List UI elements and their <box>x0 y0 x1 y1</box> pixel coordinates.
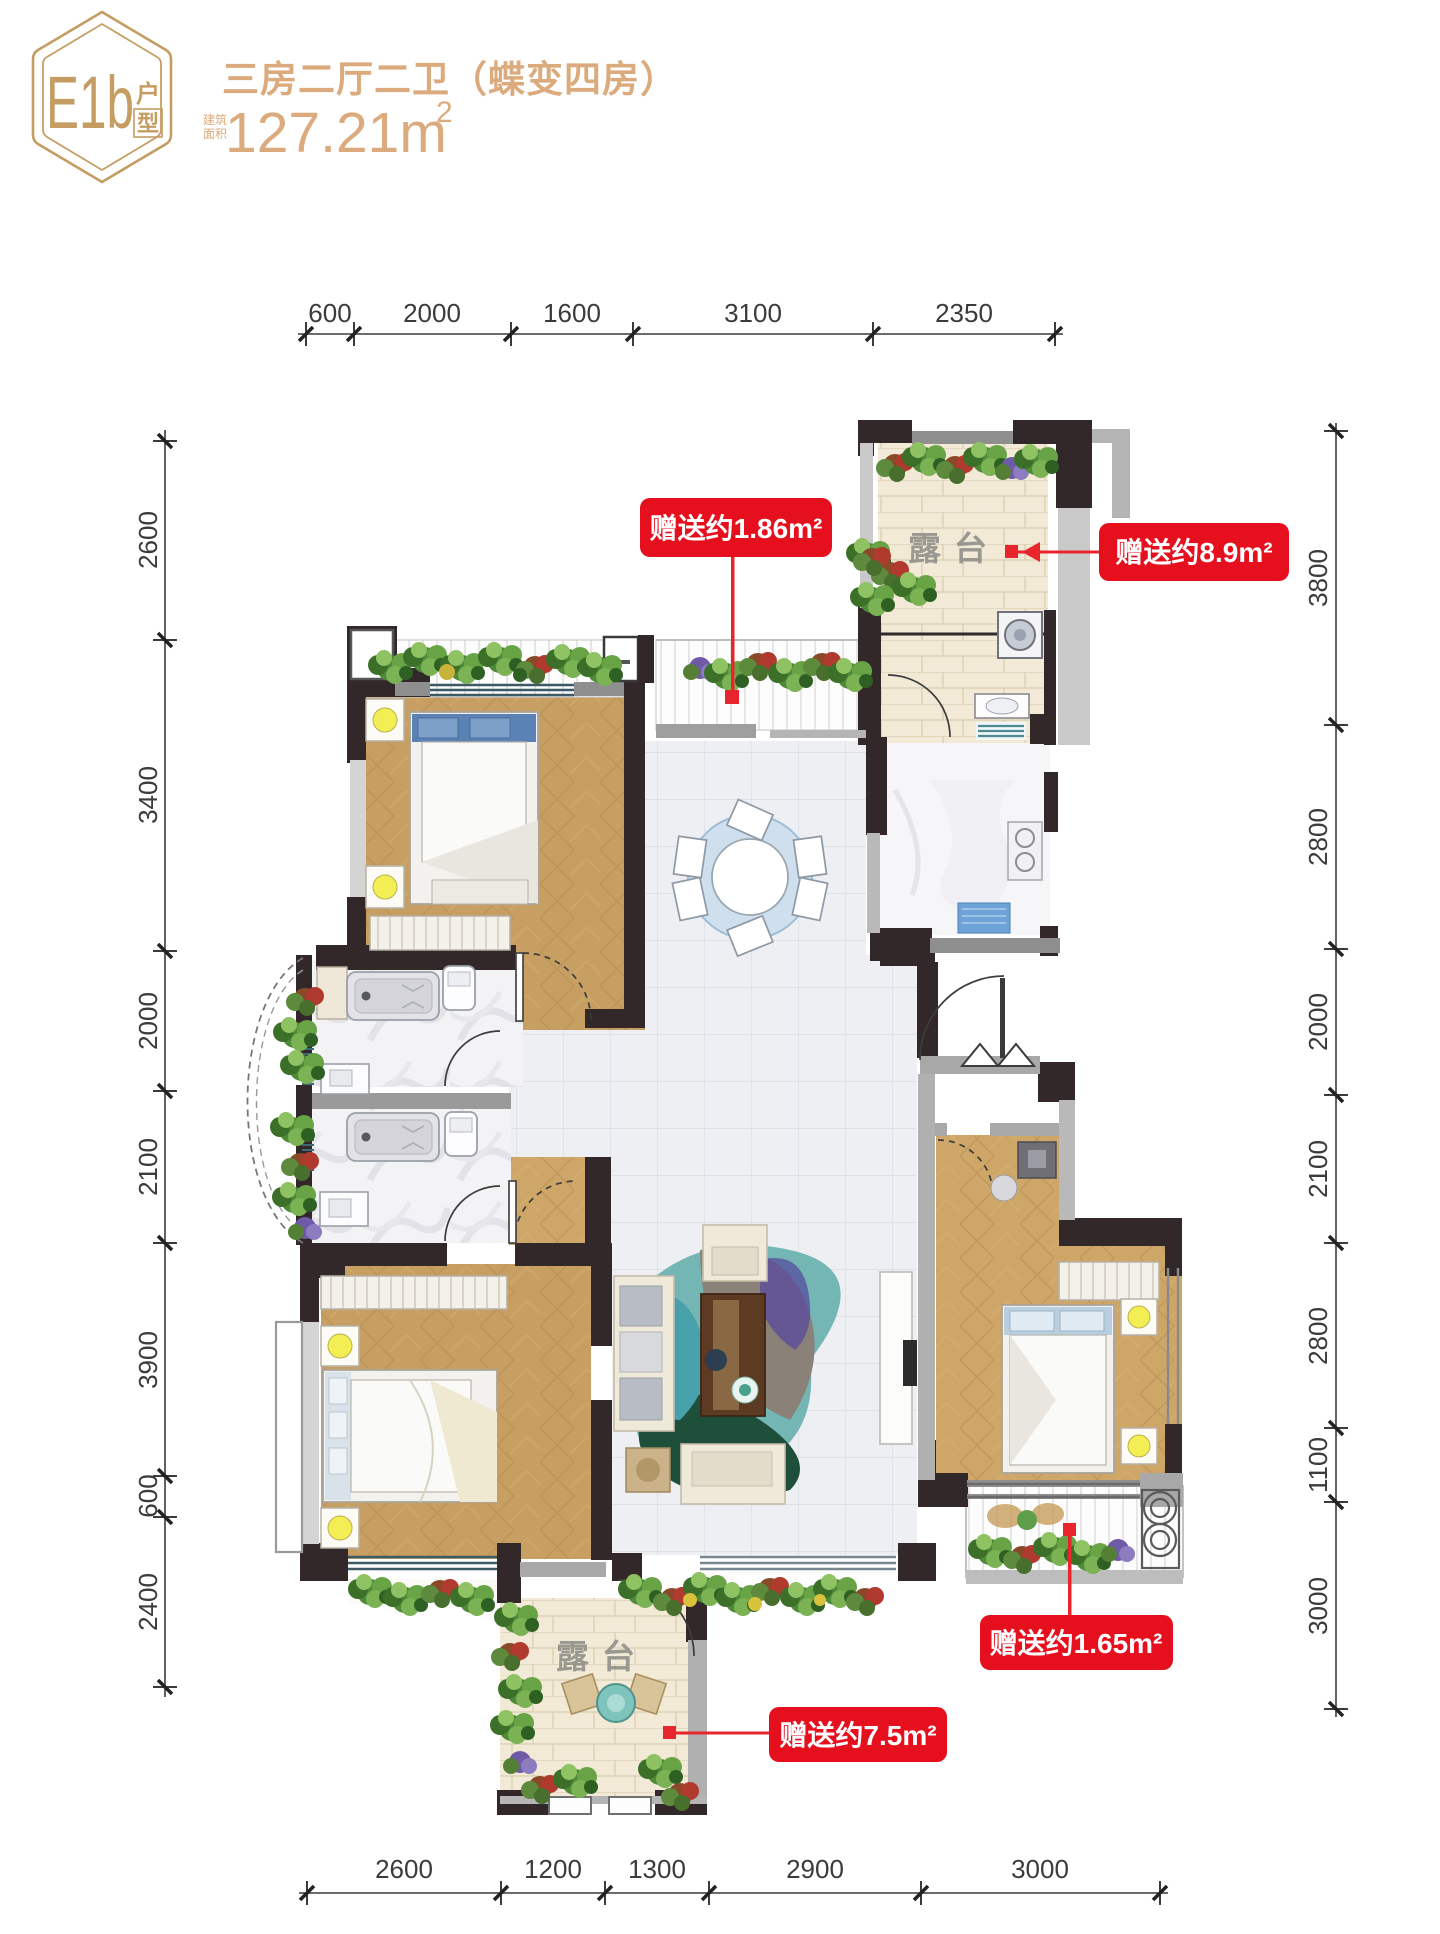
svg-text:1100: 1100 <box>1303 1437 1333 1493</box>
svg-text:3100: 3100 <box>724 298 782 328</box>
svg-text:1300: 1300 <box>628 1854 686 1884</box>
svg-text:1200: 1200 <box>524 1854 582 1884</box>
svg-text:2400: 2400 <box>133 1573 163 1631</box>
svg-text:3900: 3900 <box>133 1331 163 1389</box>
svg-text:E1b: E1b <box>46 61 134 144</box>
svg-text:户: 户 <box>136 80 160 108</box>
svg-text:3400: 3400 <box>133 766 163 824</box>
svg-text:2800: 2800 <box>1303 1307 1333 1365</box>
svg-text:1600: 1600 <box>543 298 601 328</box>
svg-text:2000: 2000 <box>1303 993 1333 1051</box>
svg-text:2100: 2100 <box>133 1138 163 1196</box>
svg-text:面积: 面积 <box>203 127 227 141</box>
svg-text:2: 2 <box>436 96 453 129</box>
svg-text:型: 型 <box>137 111 159 136</box>
svg-text:露台: 露台 <box>908 530 1000 567</box>
svg-text:赠送约1.86m²: 赠送约1.86m² <box>650 512 823 544</box>
svg-text:3000: 3000 <box>1011 1854 1069 1884</box>
svg-text:赠送约1.65m²: 赠送约1.65m² <box>990 1627 1163 1659</box>
svg-text:600: 600 <box>133 1474 163 1517</box>
svg-text:露台: 露台 <box>556 1638 648 1675</box>
svg-text:2900: 2900 <box>786 1854 844 1884</box>
svg-text:600: 600 <box>308 298 351 328</box>
svg-text:赠送约7.5m²: 赠送约7.5m² <box>779 1719 936 1751</box>
svg-text:127.21m: 127.21m <box>225 101 447 165</box>
svg-text:三房二厅二卫（蝶变四房）: 三房二厅二卫（蝶变四房） <box>222 59 678 100</box>
svg-text:2350: 2350 <box>935 298 993 328</box>
svg-text:2800: 2800 <box>1303 808 1333 866</box>
svg-text:2600: 2600 <box>375 1854 433 1884</box>
svg-text:2000: 2000 <box>403 298 461 328</box>
svg-text:2600: 2600 <box>133 511 163 569</box>
svg-text:2000: 2000 <box>133 992 163 1050</box>
svg-text:2100: 2100 <box>1303 1140 1333 1198</box>
svg-text:3000: 3000 <box>1303 1577 1333 1635</box>
svg-text:建筑: 建筑 <box>203 112 227 127</box>
svg-text:3800: 3800 <box>1303 549 1333 607</box>
svg-text:赠送约8.9m²: 赠送约8.9m² <box>1115 536 1272 568</box>
